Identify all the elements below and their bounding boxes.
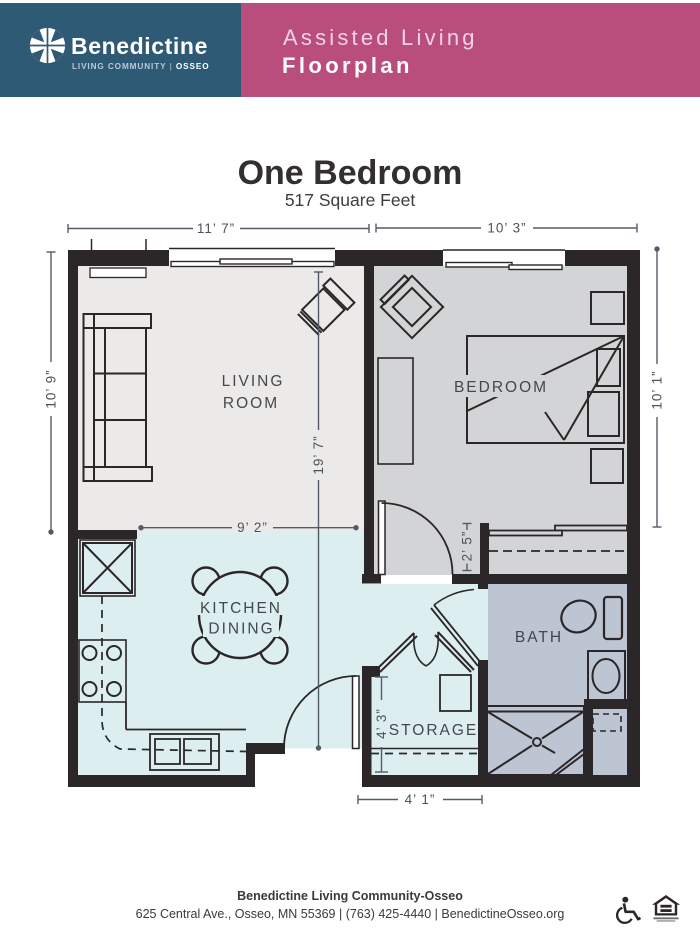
svg-text:ROOM: ROOM	[223, 395, 279, 412]
svg-text:STORAGE: STORAGE	[389, 722, 479, 739]
svg-text:KITCHEN: KITCHEN	[200, 600, 282, 617]
svg-text:10’ 9”: 10’ 9”	[44, 369, 59, 408]
svg-text:LIVING: LIVING	[222, 373, 285, 390]
svg-text:BEDROOM: BEDROOM	[454, 379, 548, 396]
svg-text:4’ 3”: 4’ 3”	[374, 708, 389, 739]
svg-text:19’ 7”: 19’ 7”	[311, 435, 326, 474]
svg-text:4’ 1”: 4’ 1”	[405, 792, 436, 807]
svg-text:10’ 3”: 10’ 3”	[487, 221, 526, 236]
svg-text:11’ 7”: 11’ 7”	[197, 221, 235, 236]
svg-text:DINING: DINING	[208, 621, 274, 638]
svg-text:10’ 1”: 10’ 1”	[650, 370, 665, 409]
svg-text:2’ 5”: 2’ 5”	[460, 531, 475, 562]
svg-text:BATH: BATH	[515, 629, 563, 646]
svg-text:9’ 2”: 9’ 2”	[237, 520, 268, 535]
